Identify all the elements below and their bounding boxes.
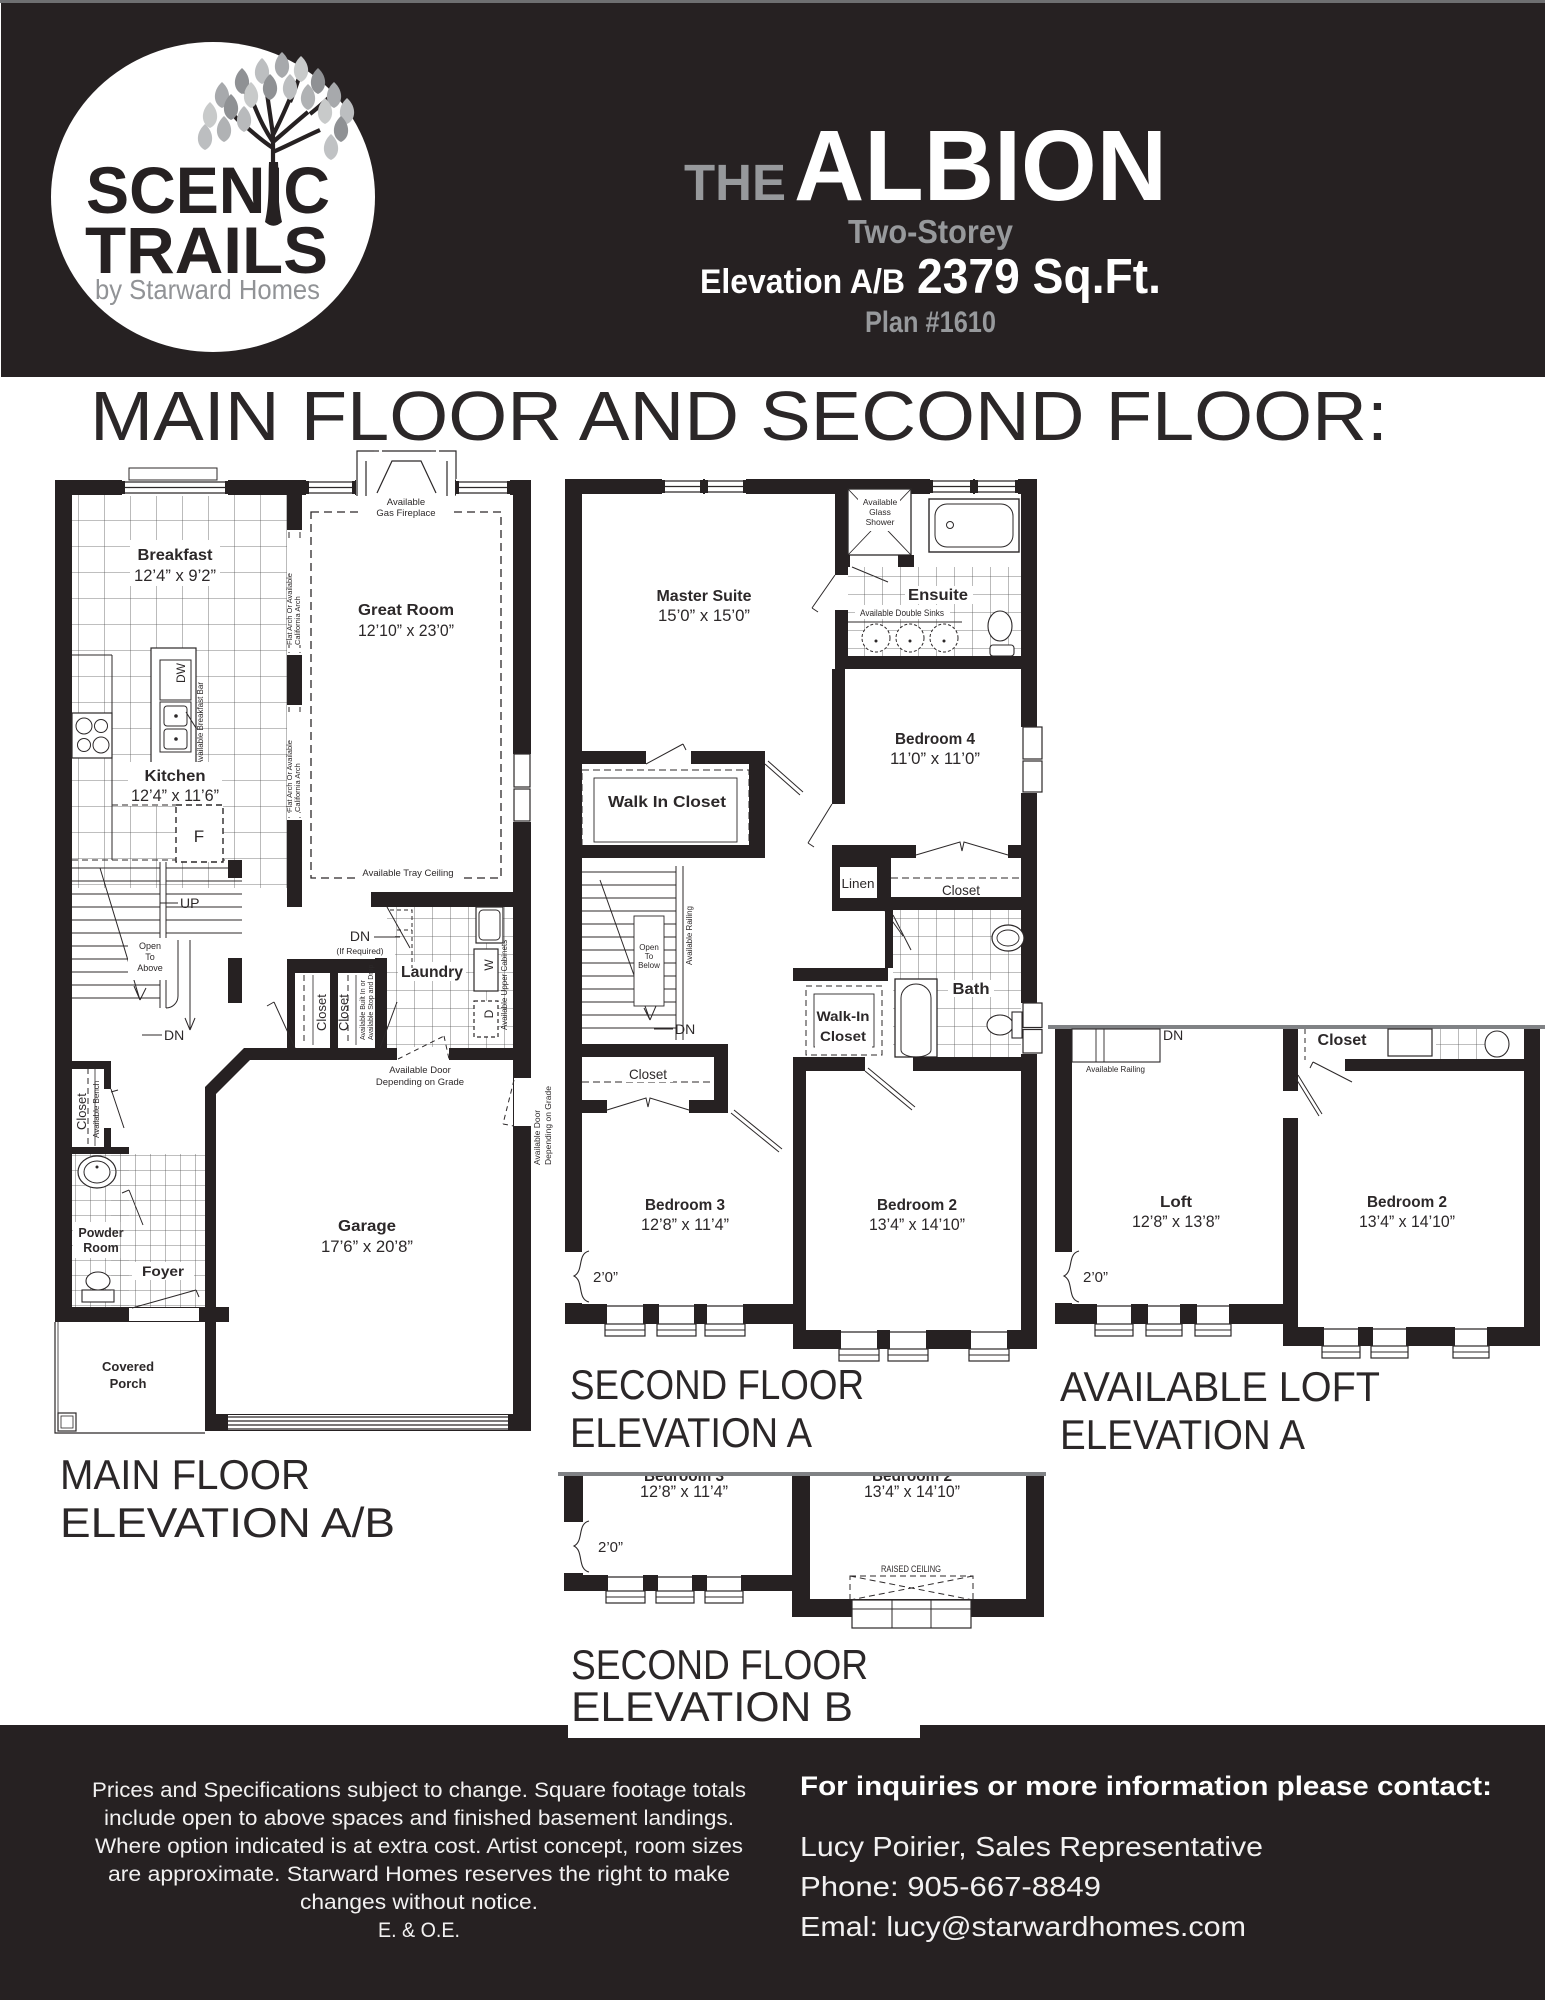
svg-text:Shower: Shower [866, 517, 895, 527]
svg-text:12’8” x 11’4”: 12’8” x 11’4” [641, 1216, 729, 1234]
svg-text:To: To [645, 952, 654, 961]
svg-text:2’0”: 2’0” [1083, 1269, 1108, 1286]
svg-text:Closet: Closet [629, 1066, 667, 1082]
svg-text:ELEVATION B: ELEVATION B [571, 1683, 853, 1730]
svg-text:Closet: Closet [336, 994, 351, 1031]
svg-text:Laundry: Laundry [401, 964, 463, 981]
svg-text:Depending on Grade: Depending on Grade [376, 1077, 464, 1088]
svg-text:15’0” x 15’0”: 15’0” x 15’0” [658, 607, 750, 625]
svg-text:11’0” x 11’0”: 11’0” x 11’0” [890, 750, 980, 768]
svg-text:are approximate. Starward Home: are approximate. Starward Homes reserves… [108, 1862, 730, 1886]
svg-text:2379 Sq.Ft.: 2379 Sq.Ft. [917, 250, 1161, 304]
svg-text:DN: DN [675, 1021, 695, 1037]
svg-text:Available Stop and Drop: Available Stop and Drop [368, 965, 375, 1040]
svg-text:2’0”: 2’0” [598, 1539, 623, 1556]
svg-text:Above: Above [137, 963, 163, 973]
svg-text:Closet: Closet [820, 1028, 866, 1044]
svg-text:2’0”: 2’0” [593, 1269, 618, 1286]
svg-text:W: W [482, 959, 496, 971]
svg-text:changes without notice.: changes without notice. [300, 1890, 538, 1914]
svg-text:Available Bench: Available Bench [92, 1081, 101, 1138]
svg-text:Great Room: Great Room [358, 602, 454, 619]
svg-text:Available Door: Available Door [532, 1110, 542, 1165]
svg-text:SECOND FLOOR: SECOND FLOOR [571, 1641, 868, 1688]
svg-text:Plan #1610: Plan #1610 [865, 306, 996, 339]
svg-text:13’4” x 14’10”: 13’4” x 14’10” [869, 1216, 965, 1234]
svg-text:Porch: Porch [110, 1376, 147, 1391]
svg-text:F: F [194, 827, 204, 846]
svg-text:Linen: Linen [842, 876, 875, 891]
svg-text:include open to above spaces a: include open to above spaces and finishe… [104, 1806, 734, 1830]
svg-text:Prices and Specifications subj: Prices and Specifications subject to cha… [92, 1778, 746, 1802]
svg-text:THE: THE [684, 154, 786, 211]
svg-text:Elevation A/B: Elevation A/B [700, 263, 905, 301]
svg-text:Open: Open [139, 941, 161, 951]
svg-text:ELEVATION A: ELEVATION A [1060, 1411, 1305, 1458]
svg-text:Open: Open [639, 943, 659, 952]
svg-text:Garage: Garage [338, 1218, 396, 1235]
svg-text:(If Required): (If Required) [336, 946, 383, 956]
svg-text:Available Railing: Available Railing [1086, 1065, 1145, 1074]
svg-text:RAISED CEILING: RAISED CEILING [881, 1564, 941, 1574]
svg-text:ALBION: ALBION [794, 110, 1167, 222]
svg-text:Gas Fireplace: Gas Fireplace [376, 508, 435, 519]
svg-text:Available Upper Cabinets: Available Upper Cabinets [500, 940, 509, 1030]
svg-text:Covered: Covered [102, 1359, 154, 1374]
svg-text:MAIN FLOOR: MAIN FLOOR [60, 1451, 310, 1498]
svg-text:Available Door: Available Door [389, 1065, 451, 1076]
svg-text:12’10” x 23’0”: 12’10” x 23’0” [358, 622, 454, 640]
svg-text:Available Breakfast Bar: Available Breakfast Bar [196, 682, 205, 765]
svg-text:Glass: Glass [869, 507, 891, 517]
svg-text:Available Double Sinks: Available Double Sinks [860, 608, 944, 618]
svg-text:Below: Below [638, 961, 660, 970]
svg-text:12’4” x 11’6”: 12’4” x 11’6” [131, 787, 219, 805]
svg-text:12’8” x 13’8”: 12’8” x 13’8” [1132, 1213, 1220, 1231]
svg-text:Master Suite: Master Suite [657, 588, 752, 605]
svg-text:For inquiries or more informat: For inquiries or more information please… [800, 1771, 1492, 1801]
svg-text:17’6” x 20’8”: 17’6” x 20’8” [321, 1238, 413, 1256]
svg-text:Breakfast: Breakfast [138, 547, 214, 564]
svg-text:Available: Available [387, 497, 425, 508]
svg-text:Where option indicated is at e: Where option indicated is at extra cost.… [95, 1834, 743, 1858]
svg-text:12’8” x 11’4”: 12’8” x 11’4” [640, 1483, 728, 1501]
svg-text:California Arch: California Arch [293, 763, 302, 812]
svg-text:Bedroom 2: Bedroom 2 [1367, 1194, 1447, 1211]
svg-text:12’4” x 9’2”: 12’4” x 9’2” [134, 567, 216, 585]
svg-text:Ensuite: Ensuite [908, 587, 968, 604]
svg-text:Available Tray Ceiling: Available Tray Ceiling [362, 868, 453, 879]
svg-text:Bedroom 4: Bedroom 4 [895, 731, 975, 748]
svg-text:AVAILABLE LOFT: AVAILABLE LOFT [1060, 1363, 1380, 1410]
svg-text:E. & O.E.: E. & O.E. [378, 1918, 460, 1942]
svg-text:Bedroom 3: Bedroom 3 [645, 1197, 725, 1214]
svg-text:Walk-In: Walk-In [817, 1008, 870, 1024]
svg-text:Available Built In or: Available Built In or [360, 980, 367, 1040]
svg-text:Two-Storey: Two-Storey [848, 213, 1014, 250]
svg-text:Bedroom 2: Bedroom 2 [877, 1197, 957, 1214]
svg-text:DN: DN [350, 928, 370, 944]
svg-text:Phone: 905-667-8849: Phone: 905-667-8849 [800, 1871, 1101, 1902]
svg-text:UP: UP [180, 895, 199, 911]
svg-text:DW: DW [174, 662, 188, 683]
svg-text:13’4” x 14’10”: 13’4” x 14’10” [1359, 1213, 1455, 1231]
svg-text:MAIN FLOOR AND SECOND FLOOR:: MAIN FLOOR AND SECOND FLOOR: [90, 377, 1388, 455]
svg-text:Kitchen: Kitchen [145, 768, 206, 785]
svg-text:ELEVATION A: ELEVATION A [570, 1409, 812, 1456]
svg-text:Foyer: Foyer [142, 1263, 185, 1279]
svg-text:DN: DN [164, 1027, 184, 1043]
svg-text:To: To [145, 952, 155, 962]
svg-text:by Starward Homes: by Starward Homes [95, 274, 320, 305]
svg-text:SECOND FLOOR: SECOND FLOOR [570, 1361, 864, 1408]
svg-text:Bath: Bath [953, 981, 990, 998]
svg-text:Emal: lucy@starwardhomes.com: Emal: lucy@starwardhomes.com [800, 1911, 1246, 1942]
svg-text:Available: Available [863, 497, 898, 507]
svg-text:DN: DN [1163, 1027, 1183, 1043]
svg-text:Closet: Closet [74, 1093, 89, 1130]
svg-text:13’4” x 14’10”: 13’4” x 14’10” [864, 1483, 960, 1501]
svg-text:Loft: Loft [1160, 1194, 1193, 1211]
svg-text:Closet: Closet [314, 994, 329, 1031]
svg-text:Available Railing: Available Railing [685, 906, 694, 965]
svg-text:ELEVATION A/B: ELEVATION A/B [60, 1499, 395, 1546]
svg-text:Lucy Poirier, Sales Representa: Lucy Poirier, Sales Representative [800, 1831, 1263, 1862]
svg-text:Depending on Grade: Depending on Grade [543, 1086, 553, 1165]
svg-text:Closet: Closet [942, 882, 980, 898]
svg-text:D: D [482, 1009, 496, 1018]
svg-text:Closet: Closet [1318, 1032, 1368, 1049]
svg-text:California Arch: California Arch [293, 596, 302, 645]
svg-text:Walk In Closet: Walk In Closet [608, 794, 727, 811]
